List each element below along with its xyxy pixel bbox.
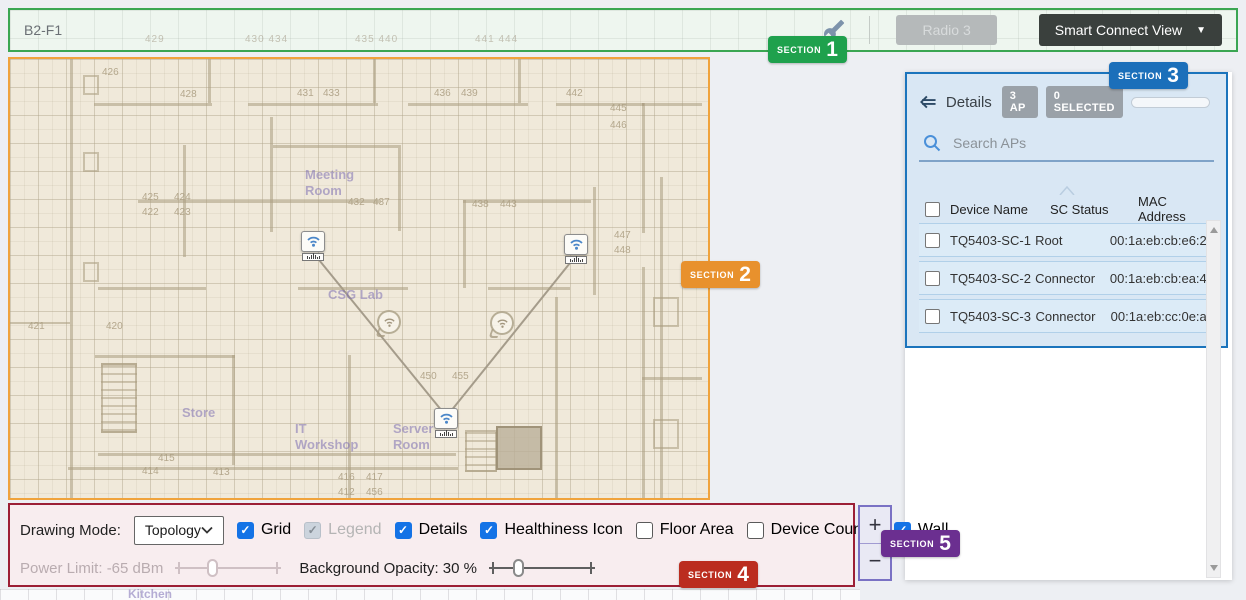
healthiness-bubble-icon xyxy=(377,310,401,334)
map-wall xyxy=(463,200,466,288)
checkbox-legend: ✓Legend xyxy=(304,521,381,539)
checkbox-box[interactable]: ✓ xyxy=(237,522,254,539)
cell-device-name: TQ5403-SC-1 xyxy=(950,233,1035,248)
column-mac-address[interactable]: MAC Address xyxy=(1138,194,1214,224)
section-badge-number: 1 xyxy=(826,39,838,60)
room-number: 447 xyxy=(614,230,631,241)
checkbox-healthiness-icon[interactable]: ✓Healthiness Icon xyxy=(480,521,622,539)
map-wall xyxy=(94,103,212,106)
cell-mac-address: 00:1a:eb:cc:0e:a0 xyxy=(1111,309,1214,324)
ap-count-badge: 3 AP xyxy=(1002,86,1038,118)
cell-sc-status: Root xyxy=(1035,233,1110,248)
room-number: 450 xyxy=(420,371,437,382)
checkbox-floor-area[interactable]: ✓Floor Area xyxy=(636,521,734,539)
cell-mac-address: 00:1a:eb:cb:ea:40 xyxy=(1110,271,1214,286)
ap-table-row[interactable]: TQ5403-SC-3Connector00:1a:eb:cc:0e:a0 xyxy=(919,299,1214,333)
room-number: 431 xyxy=(297,88,314,99)
section-badge-1: SECTION1 xyxy=(768,36,847,63)
map-wall xyxy=(556,103,644,106)
map-room-outline xyxy=(83,262,99,282)
map-wall xyxy=(593,187,596,295)
section-badge-label: SECTION xyxy=(1118,71,1162,81)
toolbar-divider xyxy=(869,16,870,44)
section-badge-label: SECTION xyxy=(688,570,732,580)
access-point-icon[interactable] xyxy=(563,234,589,264)
checkbox-box[interactable]: ✓ xyxy=(747,522,764,539)
power-limit-slider-thumb[interactable] xyxy=(207,559,218,577)
display-options-row: Drawing Mode: Topology ✓Grid✓Legend✓Deta… xyxy=(20,513,843,547)
scroll-down-icon[interactable] xyxy=(1210,565,1218,571)
map-wall xyxy=(208,59,211,103)
smart-connect-view-window: B2-F1 429430 434435 440441 444 Radio 3 S… xyxy=(0,0,1246,600)
room-number: 415 xyxy=(158,453,175,464)
floor-map-bottom-strip: Kitchen xyxy=(0,589,860,600)
room-number: 416 xyxy=(338,472,355,483)
section-badge-number: 5 xyxy=(939,533,951,554)
room-number: 437 xyxy=(373,197,390,208)
details-header: Details 3 AP 0 SELECTED xyxy=(919,86,1214,118)
stairs-shape xyxy=(101,363,137,433)
background-opacity-slider[interactable] xyxy=(489,558,595,578)
floor-map-canvas[interactable]: Meeting RoomCSG LabIT WorkshopServer Roo… xyxy=(8,57,710,500)
view-dropdown-label: Smart Connect View xyxy=(1055,22,1182,38)
map-wall xyxy=(68,467,458,470)
map-wall xyxy=(642,103,645,233)
row-checkbox[interactable] xyxy=(925,309,940,324)
background-room-number: 430 434 xyxy=(245,34,288,45)
room-number: 433 xyxy=(323,88,340,99)
map-wall xyxy=(642,103,702,106)
room-number: 425 xyxy=(142,192,159,203)
checkbox-label: Healthiness Icon xyxy=(504,521,622,539)
room-number: 413 xyxy=(213,467,230,478)
signal-meter-icon xyxy=(565,256,587,264)
room-number: 439 xyxy=(461,88,478,99)
selected-count-badge: 0 SELECTED xyxy=(1046,86,1123,118)
map-wall xyxy=(408,103,528,106)
ap-table-body: TQ5403-SC-1Root00:1a:eb:cb:e6:20TQ5403-S… xyxy=(919,223,1214,333)
map-wall xyxy=(555,297,558,498)
room-number: 412 xyxy=(338,487,355,498)
section-badge-number: 4 xyxy=(737,564,749,585)
room-label-kitchen: Kitchen xyxy=(128,589,172,600)
access-point-icon[interactable] xyxy=(300,231,326,261)
healthiness-bubble-icon xyxy=(490,311,514,335)
room-number: 417 xyxy=(366,472,383,483)
map-wall xyxy=(98,287,206,290)
checkbox-label: Floor Area xyxy=(660,521,734,539)
checkbox-box[interactable]: ✓ xyxy=(636,522,653,539)
signal-strength-bar xyxy=(1131,97,1210,108)
floor-toolbar: B2-F1 429430 434435 440441 444 Radio 3 S… xyxy=(8,8,1238,52)
background-room-number: 435 440 xyxy=(355,34,398,45)
table-tooltip-caret-icon xyxy=(1059,186,1075,195)
background-opacity-slider-thumb[interactable] xyxy=(513,559,524,577)
map-wall xyxy=(232,355,235,465)
server-rack-shape xyxy=(496,426,542,470)
room-number: 414 xyxy=(142,466,159,477)
room-number: 445 xyxy=(610,103,627,114)
checkbox-details[interactable]: ✓Details xyxy=(395,521,468,539)
section-badge-number: 3 xyxy=(1167,65,1179,86)
room-number: 446 xyxy=(610,120,627,131)
room-number: 426 xyxy=(102,67,119,78)
checkmark-icon: ✓ xyxy=(240,524,250,536)
map-wall xyxy=(488,287,570,290)
cell-device-name: TQ5403-SC-3 xyxy=(950,309,1035,324)
room-label-store: Store xyxy=(182,405,232,421)
row-checkbox[interactable] xyxy=(925,233,940,248)
power-limit-slider[interactable] xyxy=(175,558,281,578)
room-number: 436 xyxy=(434,88,451,99)
room-number: 428 xyxy=(180,89,197,100)
map-wall xyxy=(398,145,401,231)
access-point-icon[interactable] xyxy=(433,408,459,438)
background-room-number: 429 xyxy=(145,34,165,45)
signal-meter-icon xyxy=(435,430,457,438)
room-label-meeting-room: Meeting Room xyxy=(305,167,369,200)
map-wall xyxy=(248,103,378,106)
room-number: 438 xyxy=(472,199,489,210)
map-wall xyxy=(273,145,398,148)
map-wall xyxy=(642,377,702,380)
search-aps-field xyxy=(919,134,1214,162)
map-wall xyxy=(95,355,235,358)
room-number: 423 xyxy=(174,207,191,218)
room-number: 456 xyxy=(366,487,383,498)
ap-table-row[interactable]: TQ5403-SC-2Connector00:1a:eb:cb:ea:40 xyxy=(919,261,1214,295)
checkbox-box: ✓ xyxy=(304,522,321,539)
cell-device-name: TQ5403-SC-2 xyxy=(950,271,1035,286)
chevron-down-icon xyxy=(201,526,213,534)
map-wall xyxy=(660,177,663,498)
map-room-outline xyxy=(83,152,99,172)
scroll-up-icon[interactable] xyxy=(1210,227,1218,233)
map-room-outline xyxy=(653,297,679,327)
cell-sc-status: Connector xyxy=(1035,309,1110,324)
section-badge-label: SECTION xyxy=(777,45,821,55)
section-badge-number: 2 xyxy=(739,264,751,285)
room-number: 455 xyxy=(452,371,469,382)
drawing-mode-label: Drawing Mode: xyxy=(20,522,121,539)
radio-button[interactable]: Radio 3 xyxy=(896,15,996,45)
room-number: 432 xyxy=(348,197,365,208)
room-number: 442 xyxy=(566,88,583,99)
collapse-panel-icon[interactable] xyxy=(919,93,938,111)
caret-down-icon: ▼ xyxy=(1196,25,1206,36)
view-dropdown-button[interactable]: Smart Connect View ▼ xyxy=(1039,14,1222,46)
room-number: 420 xyxy=(106,321,123,332)
checkmark-icon: ✓ xyxy=(308,524,318,536)
drawing-mode-select[interactable]: Topology xyxy=(134,516,224,545)
details-title: Details xyxy=(946,94,992,111)
checkbox-box[interactable]: ✓ xyxy=(480,522,497,539)
panel-scrollbar[interactable] xyxy=(1206,220,1221,578)
map-room-outline xyxy=(83,75,99,95)
signal-meter-icon xyxy=(302,253,324,261)
map-wall xyxy=(642,267,645,498)
ap-table-row[interactable]: TQ5403-SC-1Root00:1a:eb:cb:e6:20 xyxy=(919,223,1214,257)
cell-mac-address: 00:1a:eb:cb:e6:20 xyxy=(1110,233,1214,248)
room-number: 421 xyxy=(28,321,45,332)
checkmark-icon: ✓ xyxy=(398,524,408,536)
section-badge-label: SECTION xyxy=(690,270,734,280)
floor-name: B2-F1 xyxy=(24,22,62,38)
select-all-checkbox[interactable] xyxy=(925,202,940,217)
section-badge-5: SECTION5 xyxy=(881,530,960,557)
column-device-name[interactable]: Device Name xyxy=(950,202,1050,217)
access-point-body xyxy=(434,408,458,429)
power-limit-label: Power Limit: -65 dBm xyxy=(20,560,163,577)
toolbar-actions: Radio 3 Smart Connect View ▼ xyxy=(821,10,1222,50)
cell-sc-status: Connector xyxy=(1035,271,1110,286)
background-room-number: 441 444 xyxy=(475,34,518,45)
map-wall xyxy=(270,117,273,232)
table-header: Device Name SC Status MAC Address xyxy=(919,195,1214,223)
drawing-mode-value: Topology xyxy=(145,522,201,538)
access-point-body xyxy=(301,231,325,252)
checkbox-label: Details xyxy=(419,521,468,539)
room-number: 422 xyxy=(142,207,159,218)
row-checkbox[interactable] xyxy=(925,271,940,286)
section-badge-3: SECTION3 xyxy=(1109,62,1188,89)
checkmark-icon: ✓ xyxy=(484,524,494,536)
column-sc-status[interactable]: SC Status xyxy=(1050,202,1138,217)
access-point-body xyxy=(564,234,588,255)
section-badge-2: SECTION2 xyxy=(681,261,760,288)
section-badge-label: SECTION xyxy=(890,539,934,549)
room-number: 448 xyxy=(614,245,631,256)
checkbox-label: Legend xyxy=(328,521,381,539)
checkbox-label: Grid xyxy=(261,521,291,539)
map-wall xyxy=(70,59,73,498)
background-opacity-label: Background Opacity: 30 % xyxy=(299,560,477,577)
room-label-it-workshop: IT Workshop xyxy=(295,421,367,454)
map-wall xyxy=(518,59,521,103)
stairs-shape xyxy=(465,430,497,472)
room-label-csg-lab: CSG Lab xyxy=(328,287,408,303)
map-room-outline xyxy=(653,419,679,449)
search-aps-input[interactable] xyxy=(951,134,1191,152)
section-badge-4: SECTION4 xyxy=(679,561,758,588)
room-number: 443 xyxy=(500,199,517,210)
map-wall xyxy=(373,59,376,103)
smart-connect-details-card: Details 3 AP 0 SELECTED Device Name SC S… xyxy=(905,72,1228,348)
checkbox-box[interactable]: ✓ xyxy=(395,522,412,539)
search-icon xyxy=(923,134,941,152)
room-number: 424 xyxy=(174,192,191,203)
checkbox-grid[interactable]: ✓Grid xyxy=(237,521,291,539)
